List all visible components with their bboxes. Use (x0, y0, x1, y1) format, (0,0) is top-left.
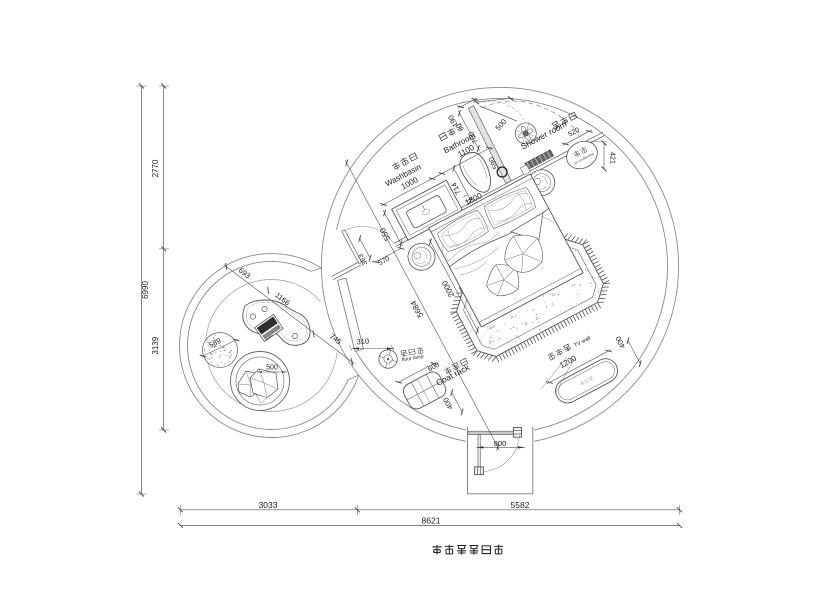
svg-text:8621: 8621 (422, 516, 441, 526)
svg-text:2770: 2770 (151, 159, 160, 177)
svg-text:421: 421 (609, 152, 616, 164)
svg-text:3033: 3033 (259, 500, 278, 510)
svg-text:6990: 6990 (141, 281, 150, 299)
svg-text:5582: 5582 (511, 500, 530, 510)
svg-text:3139: 3139 (151, 336, 160, 354)
svg-text:310: 310 (356, 336, 369, 346)
svg-text:500: 500 (266, 365, 278, 372)
